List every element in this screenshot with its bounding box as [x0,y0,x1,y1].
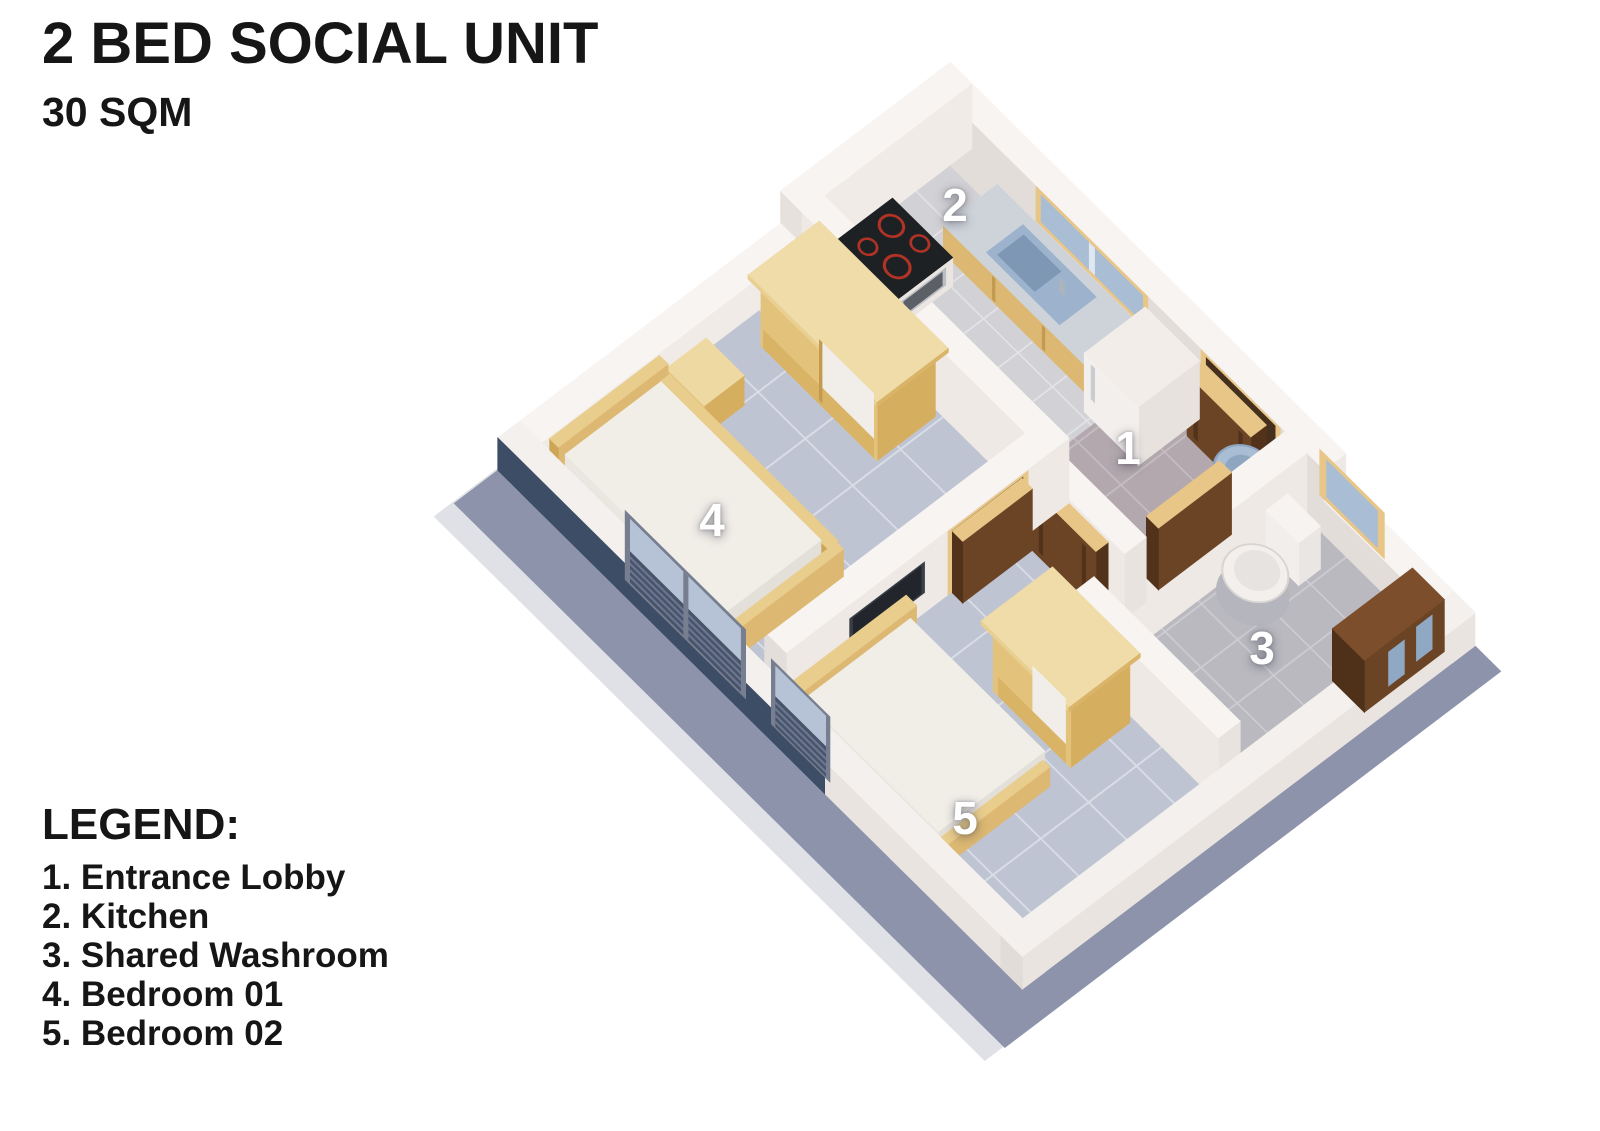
plan-geometry [819,340,822,402]
plan-geometry [952,531,962,603]
legend-item-bedroom-01: 4. Bedroom 01 [42,975,389,1014]
plan-geometry [684,572,688,639]
title-block: 2 BED SOCIAL UNIT 30 SQM [42,14,598,136]
legend: LEGEND: 1. Entrance Lobby 2. Kitchen 3. … [42,800,389,1053]
page: 2 BED SOCIAL UNIT 30 SQM LEGEND: 1. Entr… [0,0,1600,1131]
plan-geometry [992,276,995,301]
legend-heading: LEGEND: [42,800,389,850]
legend-item-bedroom-02: 5. Bedroom 02 [42,1014,389,1053]
page-subtitle: 30 SQM [42,89,598,136]
plan-geometry [1042,326,1045,351]
plan-geometry [1089,243,1094,275]
legend-item-entrance-lobby: 1. Entrance Lobby [42,858,389,897]
plan-geometry [1091,365,1094,402]
plan-geometry [1146,516,1158,590]
legend-item-kitchen: 2. Kitchen [42,897,389,936]
legend-list: 1. Entrance Lobby 2. Kitchen 3. Shared W… [42,858,389,1053]
legend-item-shared-washroom: 3. Shared Washroom [42,936,389,975]
page-title: 2 BED SOCIAL UNIT [42,14,598,75]
